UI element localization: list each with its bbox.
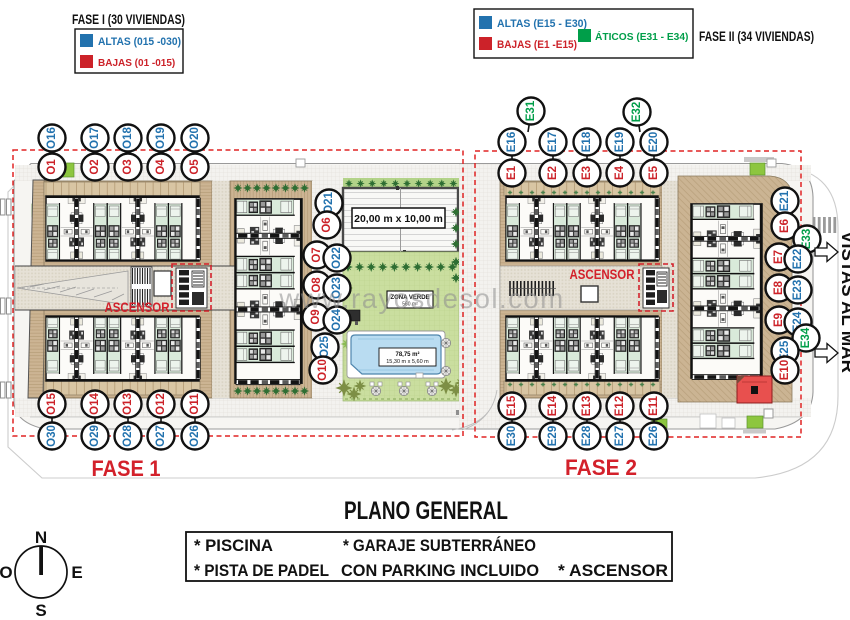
svg-text:E29: E29 <box>547 426 559 446</box>
svg-text:E: E <box>71 563 82 582</box>
svg-text:O20: O20 <box>189 127 201 149</box>
svg-text:O14: O14 <box>89 393 101 415</box>
svg-text:* GARAJE SUBTERRÁNEO: * GARAJE SUBTERRÁNEO <box>343 536 536 555</box>
svg-text:www.rayosdesol.com: www.rayosdesol.com <box>278 283 564 314</box>
svg-text:E18: E18 <box>581 131 593 152</box>
svg-text:CON PARKING INCLUIDO: CON PARKING INCLUIDO <box>341 561 539 580</box>
svg-text:ÁTICOS (E31 - E34): ÁTICOS (E31 - E34) <box>595 30 688 43</box>
svg-text:O15: O15 <box>46 393 58 415</box>
svg-text:FASE II (34 VIVIENDAS): FASE II (34 VIVIENDAS) <box>699 28 814 44</box>
svg-text:FASE I (30 VIVIENDAS): FASE I (30 VIVIENDAS) <box>72 11 185 27</box>
svg-text:O3: O3 <box>122 159 134 174</box>
svg-text:ALTAS (E15 - E30): ALTAS (E15 - E30) <box>497 18 587 30</box>
svg-text:O: O <box>0 563 13 582</box>
svg-text:* ASCENSOR: * ASCENSOR <box>558 561 668 580</box>
svg-text:* PISTA DE PADEL: * PISTA DE PADEL <box>194 561 329 580</box>
svg-text:E5: E5 <box>648 165 660 180</box>
svg-text:O16: O16 <box>46 127 58 149</box>
svg-text:O30: O30 <box>46 425 58 447</box>
svg-text:E20: E20 <box>648 132 660 152</box>
svg-text:E23: E23 <box>792 280 804 300</box>
svg-text:E15: E15 <box>506 395 518 416</box>
svg-text:O2: O2 <box>89 159 101 174</box>
svg-text:E7: E7 <box>773 250 785 264</box>
svg-text:E28: E28 <box>581 425 593 446</box>
svg-text:O4: O4 <box>155 159 167 175</box>
svg-text:E14: E14 <box>547 395 559 416</box>
svg-text:BAJAS (E1 -E15): BAJAS (E1 -E15) <box>497 39 577 51</box>
svg-text:O22: O22 <box>331 247 343 269</box>
svg-text:E16: E16 <box>506 132 518 152</box>
svg-text:78,75 m²: 78,75 m² <box>395 351 419 358</box>
svg-text:E11: E11 <box>648 395 660 415</box>
svg-text:BAJAS (01 -015): BAJAS (01 -015) <box>98 58 175 69</box>
svg-text:E27: E27 <box>614 426 626 446</box>
svg-text:E2: E2 <box>547 166 559 180</box>
svg-text:E8: E8 <box>773 280 785 295</box>
svg-text:ALTAS (015 -030): ALTAS (015 -030) <box>98 36 181 48</box>
svg-text:S: S <box>35 601 46 620</box>
svg-text:E19: E19 <box>614 132 626 152</box>
svg-text:O12: O12 <box>155 393 167 415</box>
svg-text:O19: O19 <box>155 127 167 149</box>
svg-text:20,00 m x 10,00 m: 20,00 m x 10,00 m <box>354 213 443 225</box>
svg-text:E26: E26 <box>648 426 660 446</box>
svg-text:E9: E9 <box>773 313 785 327</box>
svg-text:FASE 1: FASE 1 <box>92 456 161 481</box>
svg-text:O26: O26 <box>189 425 201 447</box>
svg-text:ASCENSOR: ASCENSOR <box>570 267 635 282</box>
svg-text:E17: E17 <box>547 132 559 152</box>
svg-text:PLANO GENERAL: PLANO GENERAL <box>344 497 508 525</box>
svg-text:E4: E4 <box>614 165 626 180</box>
svg-text:E32: E32 <box>631 102 643 122</box>
svg-text:O29: O29 <box>89 425 101 447</box>
svg-text:E30: E30 <box>506 426 518 446</box>
svg-text:ASCENSOR: ASCENSOR <box>105 300 170 315</box>
svg-text:E6: E6 <box>779 219 791 233</box>
svg-text:E10: E10 <box>779 360 791 380</box>
svg-text:FASE 2: FASE 2 <box>565 455 637 480</box>
svg-text:O18: O18 <box>122 127 134 149</box>
svg-text:E31: E31 <box>525 100 537 121</box>
svg-text:O13: O13 <box>122 393 134 415</box>
svg-text:15,30 m x 5,60 m: 15,30 m x 5,60 m <box>386 359 429 365</box>
svg-text:O11: O11 <box>189 393 201 415</box>
svg-text:* PISCINA: * PISCINA <box>194 536 273 555</box>
svg-text:O10: O10 <box>317 359 329 381</box>
svg-text:E13: E13 <box>581 396 593 416</box>
svg-text:E3: E3 <box>581 166 593 180</box>
svg-text:O25: O25 <box>319 336 331 358</box>
svg-text:E21: E21 <box>779 190 791 211</box>
svg-text:E34: E34 <box>800 327 812 348</box>
svg-text:E12: E12 <box>614 396 626 416</box>
svg-text:N: N <box>35 528 47 547</box>
svg-text:O28: O28 <box>122 425 134 447</box>
svg-text:O1: O1 <box>46 159 58 175</box>
svg-text:E1: E1 <box>506 165 518 180</box>
svg-text:O7: O7 <box>311 247 323 262</box>
svg-text:O6: O6 <box>321 217 333 232</box>
svg-text:O17: O17 <box>89 127 101 149</box>
svg-text:VISTAS AL MAR: VISTAS AL MAR <box>838 231 850 373</box>
svg-text:E22: E22 <box>792 249 804 269</box>
svg-text:O5: O5 <box>189 159 201 175</box>
svg-text:O27: O27 <box>155 425 167 447</box>
